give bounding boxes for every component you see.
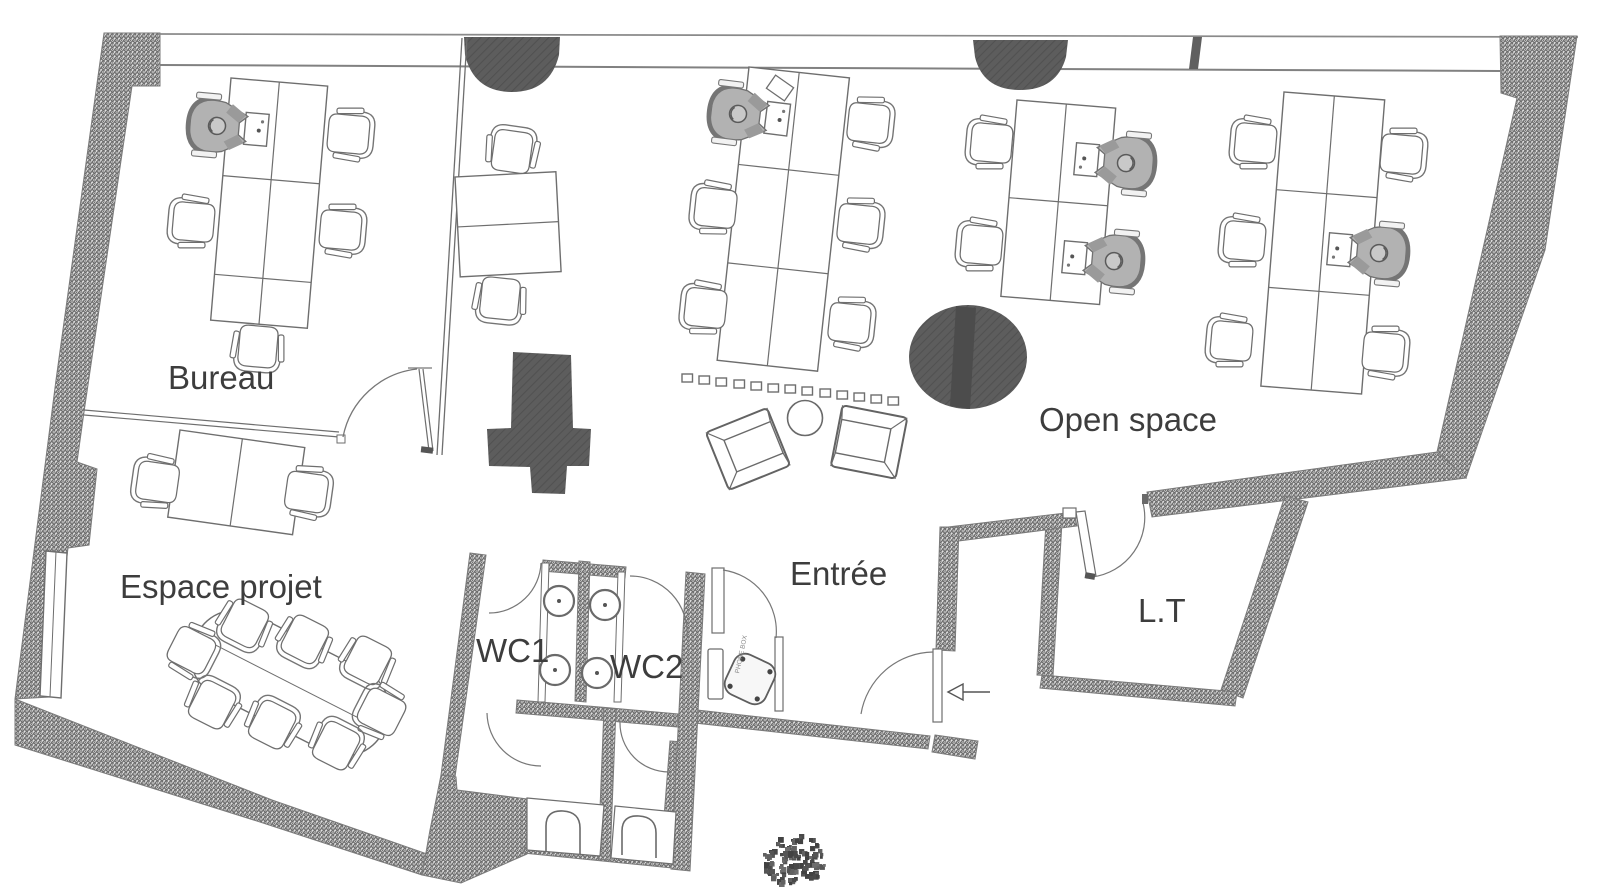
svg-text:Espace projet: Espace projet (120, 568, 322, 605)
svg-text:WC2: WC2 (610, 648, 683, 685)
svg-text:Bureau: Bureau (168, 359, 274, 396)
svg-text:Open space: Open space (1039, 401, 1217, 438)
svg-text:Entrée: Entrée (790, 555, 887, 592)
svg-text:WC1: WC1 (476, 632, 549, 669)
svg-text:L.T: L.T (1138, 592, 1186, 629)
